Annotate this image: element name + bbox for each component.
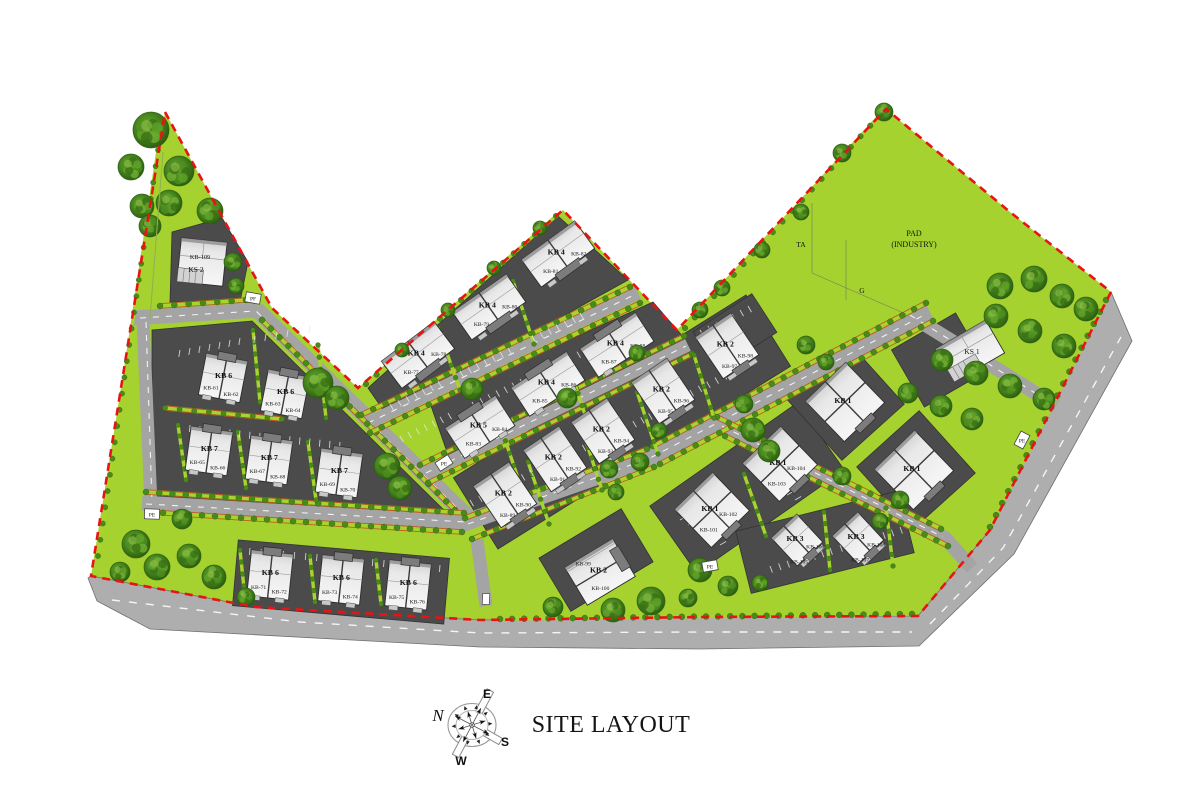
- svg-text:KB-81: KB-81: [543, 269, 558, 275]
- svg-text:TA: TA: [796, 240, 806, 249]
- svg-text:KB-89: KB-89: [500, 513, 515, 519]
- svg-text:KB 2: KB 2: [653, 385, 670, 394]
- svg-text:PE: PE: [1019, 438, 1026, 444]
- svg-text:KB 6: KB 6: [215, 371, 232, 380]
- svg-text:KB 2: KB 2: [495, 489, 512, 498]
- svg-text:KB-86: KB-86: [561, 382, 576, 388]
- svg-text:KB-69: KB-69: [320, 482, 335, 488]
- svg-text:KB-72: KB-72: [272, 590, 287, 596]
- svg-text:KB-109: KB-109: [190, 254, 210, 261]
- svg-text:KB-68: KB-68: [270, 474, 285, 480]
- svg-text:KB 6: KB 6: [333, 573, 350, 582]
- svg-text:KB 1: KB 1: [701, 504, 718, 513]
- svg-text:KB-75: KB-75: [389, 595, 404, 601]
- svg-text:KB-106: KB-106: [806, 544, 824, 550]
- svg-text:SITE LAYOUT: SITE LAYOUT: [532, 712, 691, 738]
- svg-text:KB-104: KB-104: [787, 466, 805, 472]
- svg-text:KB 6: KB 6: [262, 568, 279, 577]
- svg-text:N: N: [431, 706, 445, 725]
- svg-text:KB-77: KB-77: [403, 370, 418, 376]
- svg-text:KB-78: KB-78: [431, 352, 446, 358]
- svg-text:(INDUSTRY): (INDUSTRY): [891, 240, 937, 249]
- svg-text:PAD: PAD: [906, 229, 921, 238]
- svg-text:E: E: [483, 687, 491, 701]
- svg-text:KB-92: KB-92: [566, 466, 581, 472]
- svg-text:KB 4: KB 4: [538, 378, 555, 387]
- svg-text:KB-101: KB-101: [700, 528, 718, 534]
- svg-text:KB 1: KB 1: [834, 396, 851, 405]
- svg-text:KB-79: KB-79: [474, 322, 489, 328]
- svg-text:KB-105: KB-105: [790, 559, 808, 565]
- svg-text:KB 4: KB 4: [408, 349, 425, 358]
- svg-text:W: W: [455, 754, 467, 768]
- svg-text:KB-107: KB-107: [851, 557, 869, 563]
- svg-text:KB-70: KB-70: [340, 487, 355, 493]
- svg-text:PE: PE: [441, 461, 448, 467]
- svg-text:KB 7: KB 7: [331, 466, 348, 475]
- svg-text:KB 1: KB 1: [903, 464, 920, 473]
- svg-text:KB-67: KB-67: [250, 469, 265, 475]
- svg-text:S: S: [501, 735, 509, 749]
- svg-text:KB 5: KB 5: [470, 421, 487, 430]
- svg-text:KB-91: KB-91: [550, 477, 565, 483]
- svg-text:KB 3: KB 3: [786, 534, 803, 543]
- svg-text:KB-85: KB-85: [532, 399, 547, 405]
- svg-text:KB 6: KB 6: [400, 578, 417, 587]
- svg-text:KB-80: KB-80: [502, 305, 517, 311]
- svg-text:KB-66: KB-66: [210, 465, 225, 471]
- svg-text:KB-73: KB-73: [322, 590, 337, 596]
- svg-text:KB-98: KB-98: [738, 353, 753, 359]
- svg-text:KB-82: KB-82: [571, 251, 586, 257]
- svg-text:KB-94: KB-94: [614, 438, 629, 444]
- svg-text:KB-71: KB-71: [251, 585, 266, 591]
- svg-text:KB-100: KB-100: [591, 586, 609, 592]
- svg-text:KB-90: KB-90: [516, 502, 531, 508]
- svg-text:KB 4: KB 4: [479, 301, 496, 310]
- svg-text:KB-97: KB-97: [722, 364, 737, 370]
- svg-text:KB-61: KB-61: [203, 386, 218, 392]
- svg-text:KB 4: KB 4: [607, 339, 624, 348]
- svg-text:KB-84: KB-84: [492, 427, 507, 433]
- svg-text:KB-63: KB-63: [265, 402, 280, 408]
- svg-text:KB-103: KB-103: [768, 482, 786, 488]
- svg-text:KB-99: KB-99: [576, 561, 591, 567]
- svg-text:PF: PF: [250, 296, 256, 302]
- svg-text:KB 2: KB 2: [590, 565, 607, 574]
- svg-text:G: G: [859, 286, 865, 295]
- svg-text:PE: PE: [149, 512, 156, 518]
- svg-text:KB-96: KB-96: [674, 398, 689, 404]
- svg-text:KS 2: KS 2: [188, 265, 203, 274]
- svg-text:KB-95: KB-95: [658, 409, 673, 415]
- svg-text:PE: PE: [707, 564, 714, 570]
- svg-text:KB-64: KB-64: [285, 408, 300, 414]
- svg-text:KB-93: KB-93: [598, 449, 613, 455]
- svg-text:KB 7: KB 7: [261, 453, 278, 462]
- svg-text:KB 7: KB 7: [201, 444, 218, 453]
- svg-text:KB-62: KB-62: [223, 392, 238, 398]
- svg-text:KB-74: KB-74: [343, 595, 358, 601]
- svg-text:KB-65: KB-65: [190, 460, 205, 466]
- svg-text:KB-83: KB-83: [466, 441, 481, 447]
- svg-text:KB 6: KB 6: [277, 387, 294, 396]
- svg-text:KB-102: KB-102: [719, 512, 737, 518]
- svg-text:KB 2: KB 2: [593, 425, 610, 434]
- svg-text:KB-76: KB-76: [410, 600, 425, 606]
- svg-text:KS 1: KS 1: [964, 347, 979, 356]
- svg-text:KB-87: KB-87: [601, 360, 616, 366]
- svg-text:KB 2: KB 2: [545, 453, 562, 462]
- svg-text:KB-108: KB-108: [867, 542, 885, 548]
- svg-text:KB 4: KB 4: [548, 248, 565, 257]
- svg-text:KB 2: KB 2: [717, 340, 734, 349]
- svg-text:KB 3: KB 3: [847, 532, 864, 541]
